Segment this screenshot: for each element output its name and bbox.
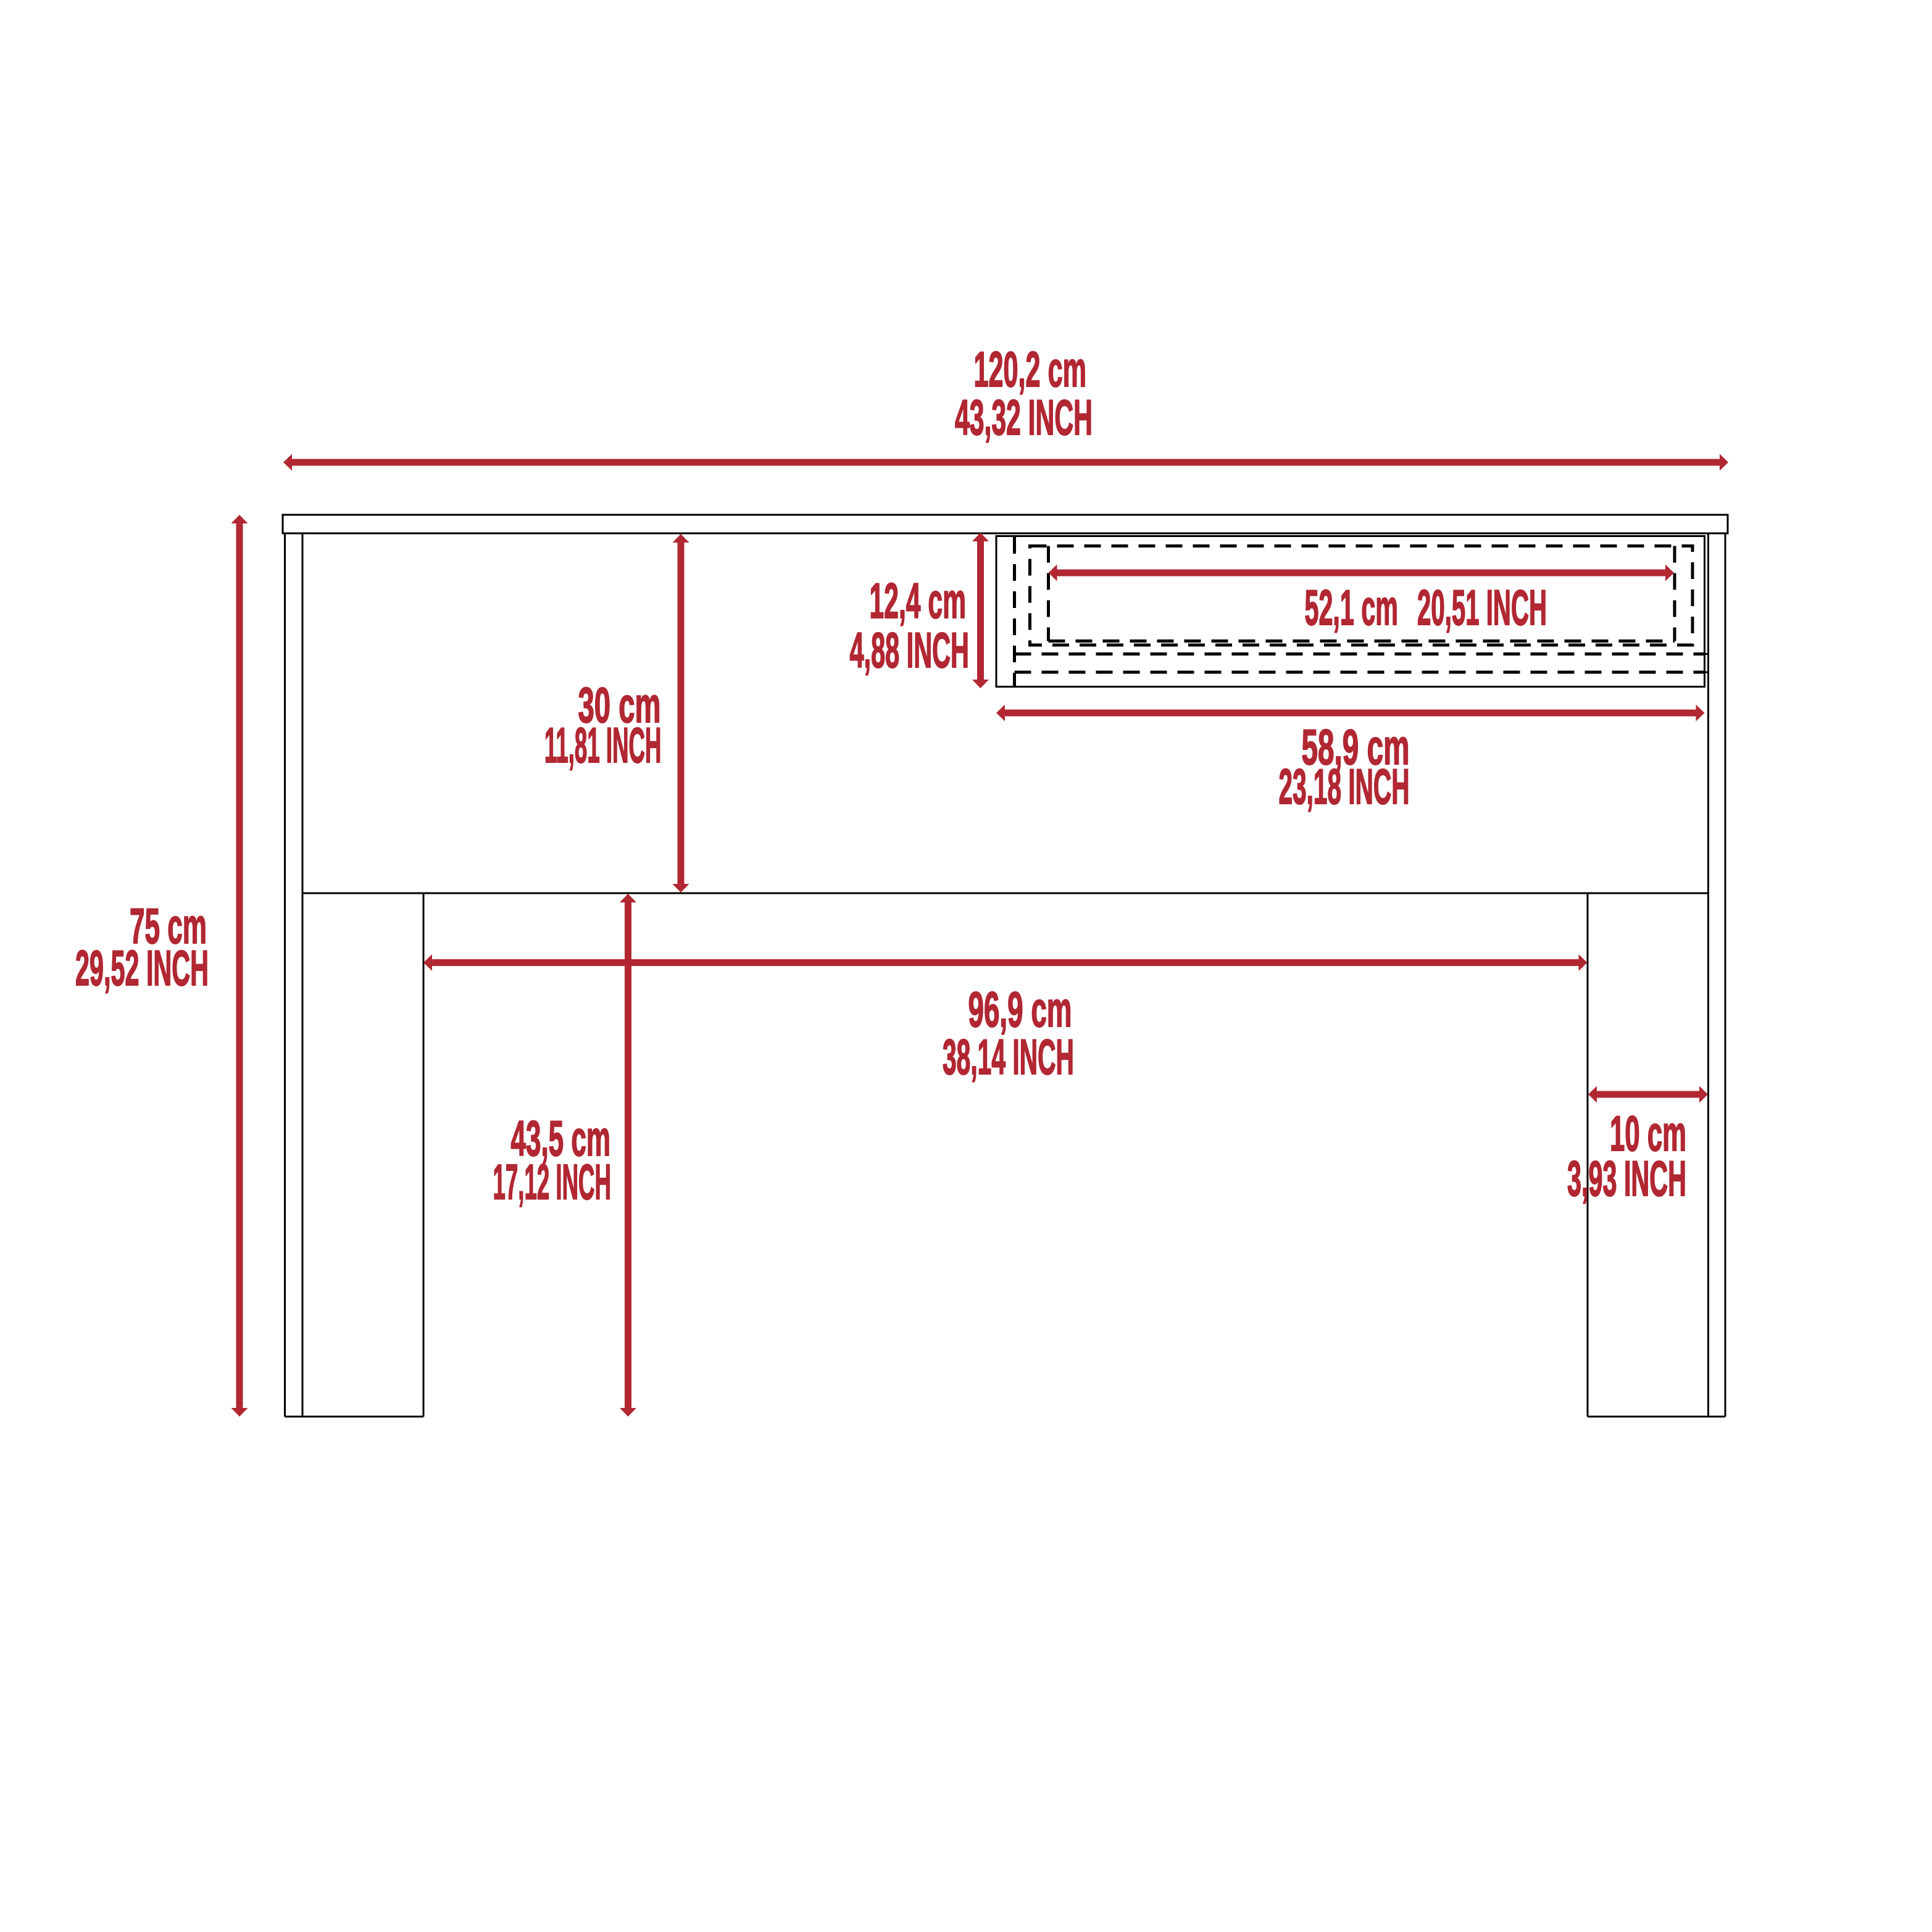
svg-text:29,52 INCH: 29,52 INCH xyxy=(75,941,209,996)
svg-text:17,12 INCH: 17,12 INCH xyxy=(493,1155,612,1210)
svg-text:20,51 INCH: 20,51 INCH xyxy=(1417,580,1547,636)
svg-text:12,4 cm: 12,4 cm xyxy=(870,573,967,629)
svg-text:11,81 INCH: 11,81 INCH xyxy=(544,718,662,773)
svg-text:120,2 cm: 120,2 cm xyxy=(974,342,1087,398)
svg-text:52,1 cm: 52,1 cm xyxy=(1305,580,1399,636)
svg-text:43,32 INCH: 43,32 INCH xyxy=(955,390,1093,446)
svg-text:23,18 INCH: 23,18 INCH xyxy=(1279,759,1410,815)
svg-text:3,93 INCH: 3,93 INCH xyxy=(1567,1151,1686,1207)
svg-text:38,14 INCH: 38,14 INCH xyxy=(943,1030,1074,1085)
svg-text:4,88 INCH: 4,88 INCH xyxy=(850,623,970,678)
